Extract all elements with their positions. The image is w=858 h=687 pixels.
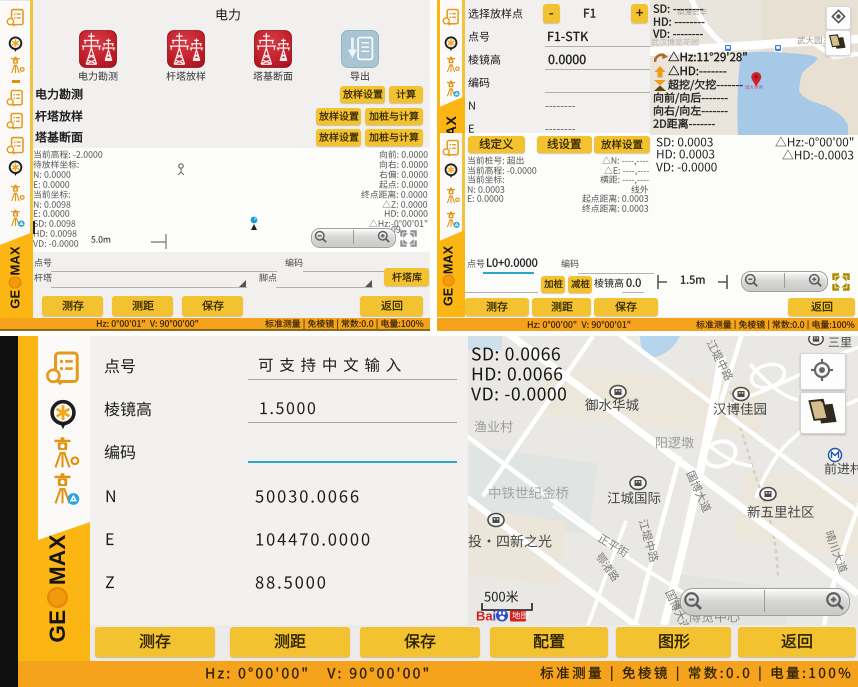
svg-text:i: i xyxy=(493,609,497,624)
svg-text:Ba: Ba xyxy=(476,609,493,624)
